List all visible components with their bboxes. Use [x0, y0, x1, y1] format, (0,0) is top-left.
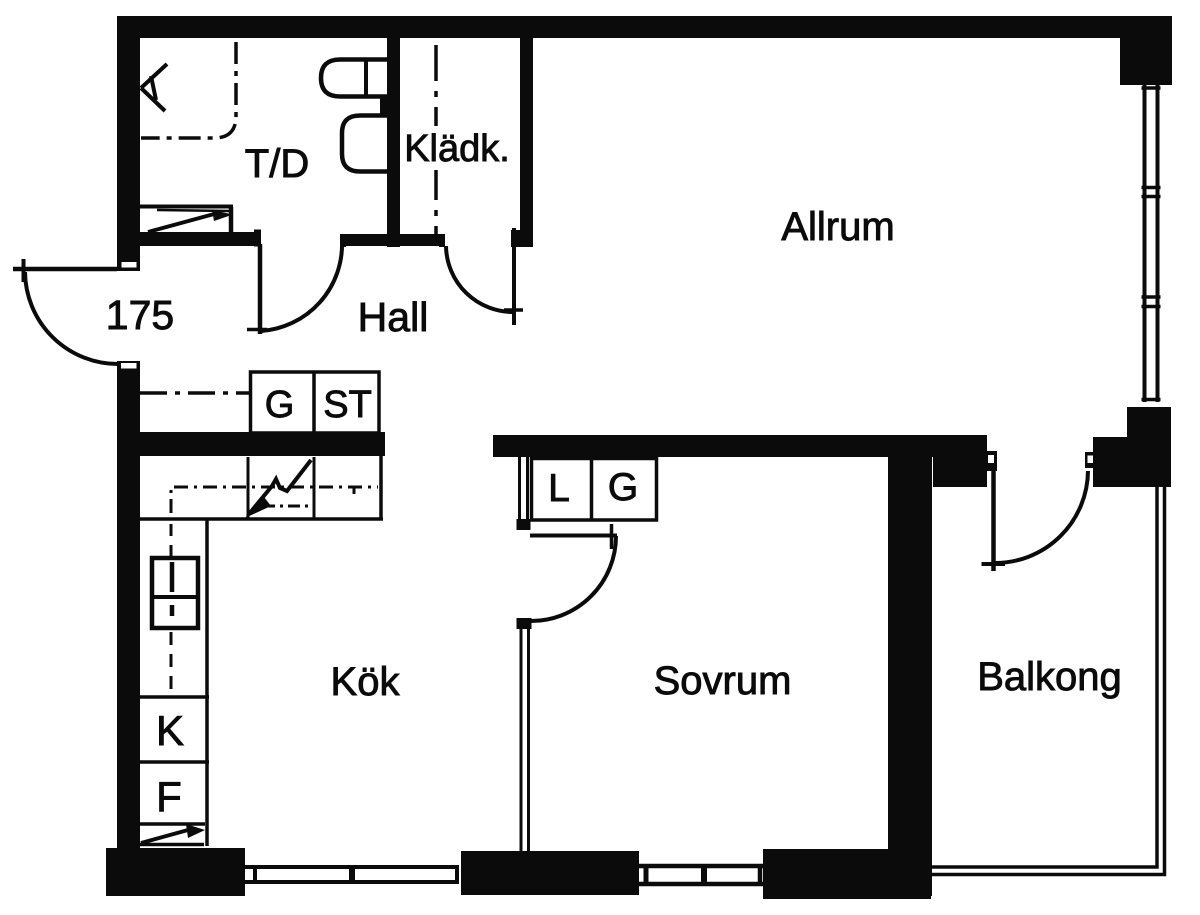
svg-text:ST: ST [323, 384, 372, 426]
svg-text:Sovrum: Sovrum [654, 659, 792, 703]
svg-text:Hall: Hall [358, 294, 429, 340]
svg-text:G: G [608, 466, 638, 509]
svg-text:Klädk.: Klädk. [404, 128, 510, 170]
svg-text:L: L [548, 467, 570, 510]
svg-text:F: F [156, 773, 182, 820]
svg-text:G: G [265, 384, 295, 426]
svg-text:Allrum: Allrum [781, 205, 894, 249]
svg-text:K: K [156, 707, 184, 754]
svg-text:Balkong: Balkong [977, 655, 1122, 699]
svg-text:Kök: Kök [331, 660, 401, 704]
svg-text:T/D: T/D [245, 142, 309, 186]
svg-text:175: 175 [106, 292, 174, 338]
